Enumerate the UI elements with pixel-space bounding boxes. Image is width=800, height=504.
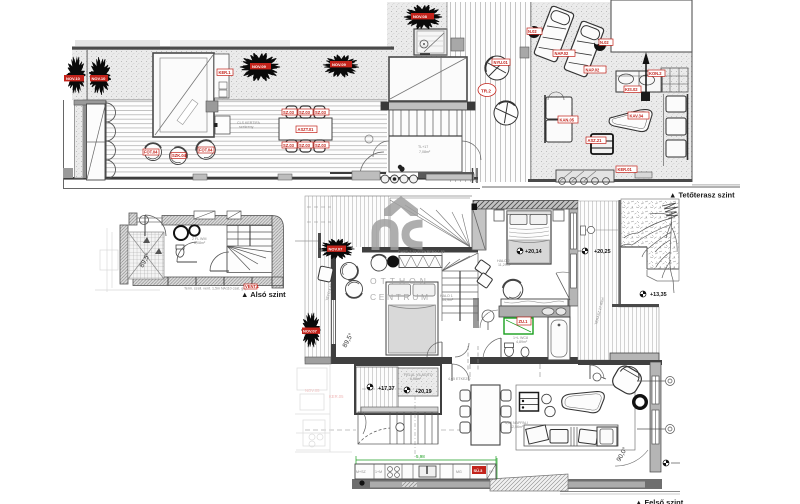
svg-text:▲ Tetőterasz szint: ▲ Tetőterasz szint <box>669 191 735 200</box>
svg-text:7,08m²: 7,08m² <box>419 150 431 154</box>
svg-text:TR.2: TR.2 <box>481 88 491 93</box>
svg-text:NOV.08: NOV.08 <box>413 14 428 19</box>
svg-text:6,08m²: 6,08m² <box>410 377 422 381</box>
svg-text:MG: MG <box>456 470 462 474</box>
svg-text:SZ.03: SZ.03 <box>299 143 311 148</box>
svg-text:N.02: N.02 <box>528 29 537 34</box>
svg-text:KER.01: KER.01 <box>618 167 633 172</box>
svg-text:+20,25: +20,25 <box>594 249 611 255</box>
svg-text:SZ.03: SZ.03 <box>283 110 295 115</box>
svg-text:KAN.05: KAN.05 <box>560 117 575 122</box>
svg-text:NOV.10: NOV.10 <box>66 76 81 81</box>
svg-text:6,08m²: 6,08m² <box>194 241 206 245</box>
svg-text:KON.2: KON.2 <box>649 71 662 76</box>
svg-text:Term. szell. vent. 1,5m NA110: Term. szell. vent. 1,5m NA110 csat. gep. <box>184 287 248 291</box>
svg-text:▲ Alsó szint: ▲ Alsó szint <box>241 290 286 299</box>
svg-text:ZU.1: ZU.1 <box>519 319 529 324</box>
svg-text:14,9m²: 14,9m² <box>442 298 454 302</box>
svg-text:4,89m²: 4,89m² <box>516 340 528 344</box>
svg-text:VENT.1: VENT.1 <box>245 284 260 289</box>
svg-text:NOV.10: NOV.10 <box>92 76 107 81</box>
svg-text:SZ.03: SZ.03 <box>299 110 311 115</box>
svg-text:N.02: N.02 <box>600 40 609 45</box>
svg-text:NAP.02: NAP.02 <box>586 67 601 72</box>
svg-text:ASZT.01: ASZT.01 <box>298 127 315 132</box>
svg-text:SÜ.3: SÜ.3 <box>474 468 484 473</box>
svg-text:NAP.02: NAP.02 <box>555 51 570 56</box>
svg-text:ASZ.21: ASZ.21 <box>588 138 603 143</box>
svg-text:szekreny: szekreny <box>239 125 254 129</box>
svg-text:+20,19: +20,19 <box>415 389 432 395</box>
svg-text:NOV.07: NOV.07 <box>303 329 318 334</box>
svg-text:SZ.03: SZ.03 <box>283 143 295 148</box>
svg-text:KER.05: KER.05 <box>329 394 344 399</box>
svg-text:NOV.09: NOV.09 <box>252 64 267 69</box>
svg-text:4,65 ETKEZO: 4,65 ETKEZO <box>448 377 471 381</box>
svg-text:NOV.09: NOV.09 <box>332 62 347 67</box>
svg-text:1+M: 1+M <box>375 470 382 474</box>
svg-text:▲ Felső szint: ▲ Felső szint <box>635 498 684 504</box>
svg-text:KIS.02: KIS.02 <box>625 87 638 92</box>
svg-text:+20,14: +20,14 <box>525 249 542 255</box>
svg-text:32,56m²: 32,56m² <box>510 425 524 429</box>
svg-text:SZ.03: SZ.03 <box>315 110 327 115</box>
svg-text:TL+17: TL+17 <box>418 145 428 149</box>
svg-text:OTTHON: OTTHON <box>370 276 430 286</box>
svg-text:NOV.05: NOV.05 <box>305 388 320 393</box>
svg-text:11,29m²: 11,29m² <box>498 263 512 267</box>
svg-text:NYU.01: NYU.01 <box>494 60 509 65</box>
svg-text:KAV.34: KAV.34 <box>630 113 644 118</box>
svg-text:FOT.04: FOT.04 <box>144 150 158 155</box>
svg-text:M+SZ: M+SZ <box>356 470 366 474</box>
svg-text:GARD 2,15 SZEKRENY 1,85: GARD 2,15 SZEKRENY 1,85 <box>398 250 445 254</box>
svg-text:SZK.04: SZK.04 <box>172 153 187 158</box>
svg-text:5,98: 5,98 <box>416 454 425 459</box>
svg-text:NOV.07: NOV.07 <box>329 247 344 252</box>
svg-text:SZ.03: SZ.03 <box>315 143 327 148</box>
svg-text:+17,37: +17,37 <box>378 386 395 392</box>
svg-text:KER.1: KER.1 <box>219 70 232 75</box>
svg-text:CENTRUM: CENTRUM <box>370 292 431 302</box>
svg-text:FOT.04: FOT.04 <box>199 148 213 153</box>
svg-text:+13,35: +13,35 <box>650 292 667 298</box>
